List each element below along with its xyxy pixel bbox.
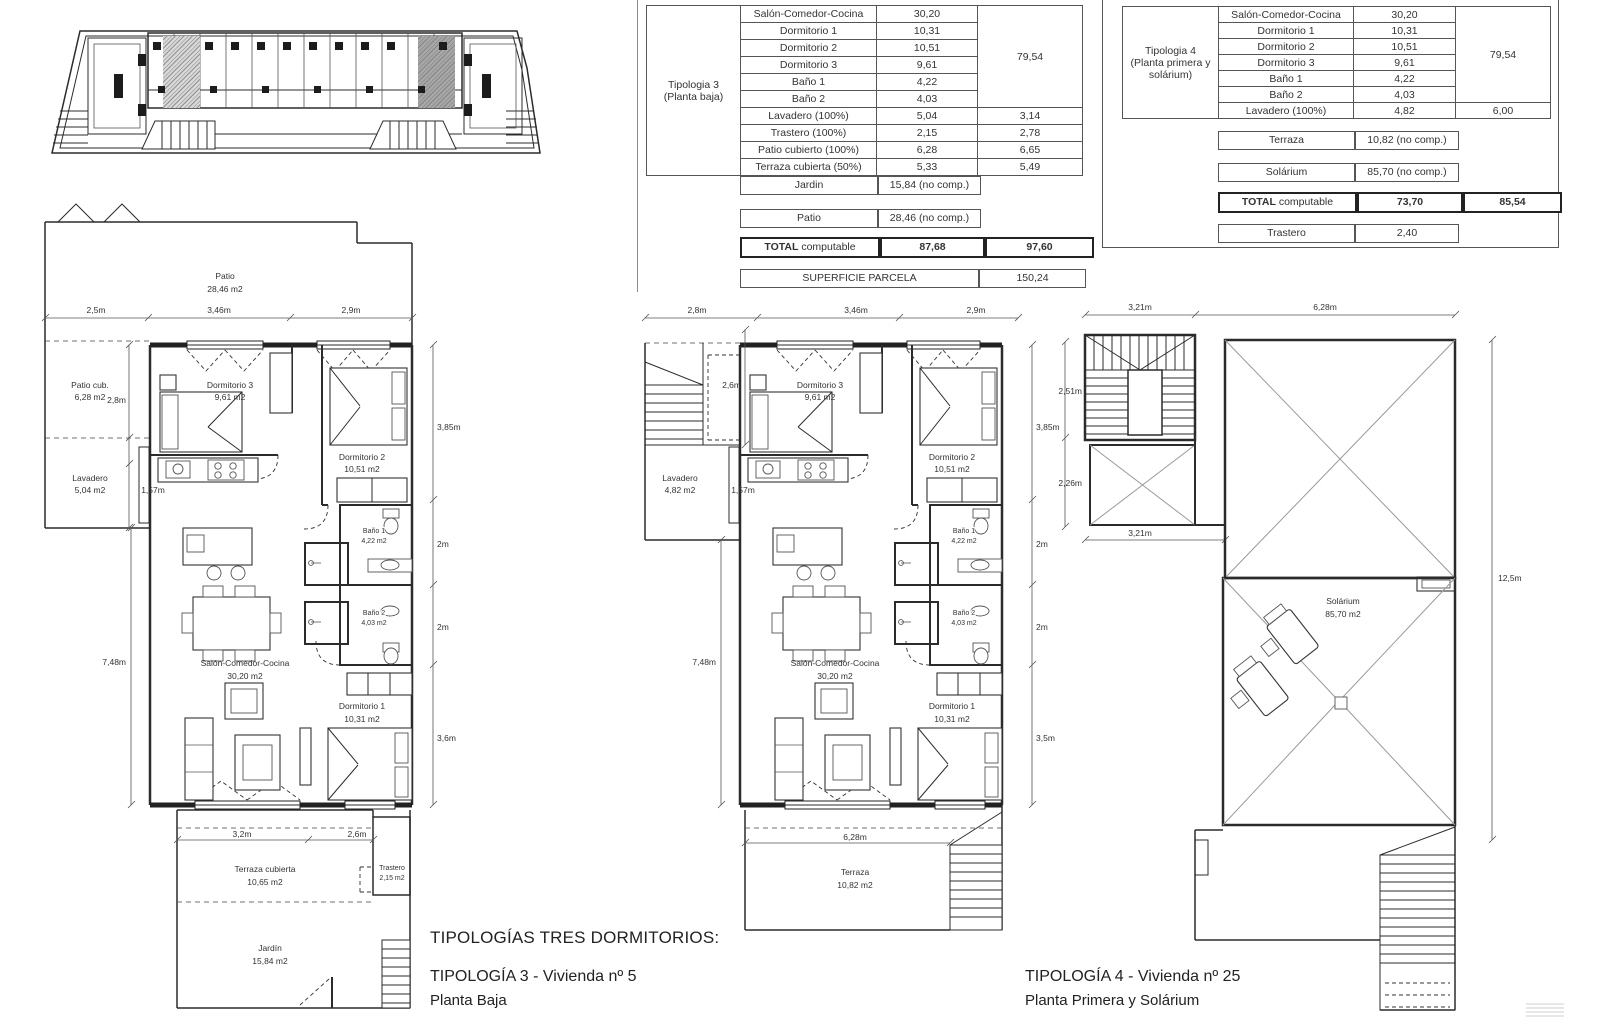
room-value2: 3,14	[978, 108, 1083, 125]
room-value: 10,51	[1354, 39, 1456, 55]
room-label: Dormitorio 2	[339, 452, 386, 462]
dimension-label: 3,46m	[207, 305, 231, 315]
kitchen	[158, 458, 258, 580]
room-area: 4,22 m2	[361, 538, 386, 545]
room-label: Baño 2	[363, 610, 385, 617]
room-label: Terraza	[841, 867, 870, 877]
room-label: Terraza cubierta (50%)	[741, 159, 877, 176]
site-stairs	[142, 121, 456, 149]
dimension-label: 3,6m	[437, 733, 456, 743]
parcela-value: 150,24	[979, 269, 1086, 288]
dimension-label: 3,46m	[844, 305, 868, 315]
parcela-row: SUPERFICIE PARCELA 150,24	[740, 269, 1086, 288]
area-table-tipologia-4: Tipologia 4 (Planta primera y solárium) …	[1122, 6, 1551, 119]
room-value: 4,22	[1354, 71, 1456, 87]
room-label: Jardín	[258, 943, 282, 953]
trastero-label: Trastero	[1218, 224, 1355, 243]
trastero-row: Trastero 2,40	[1218, 224, 1459, 243]
total-value1: 87,68	[880, 237, 985, 258]
room-area: 6,28 m2	[75, 392, 106, 402]
room-label: Terraza cubierta	[235, 864, 296, 874]
dimension-label: 12,5m	[1498, 573, 1522, 583]
dining-table	[772, 586, 871, 661]
dimension-label: 2,9m	[342, 305, 361, 315]
room-area: 10,51 m2	[934, 464, 970, 474]
staircase	[645, 343, 740, 445]
room-label: Dormitorio 3	[207, 380, 254, 390]
room-area: 9,61 m2	[805, 392, 836, 402]
dimension-label: 2,8m	[107, 395, 126, 405]
floor-plan-tipologia-4: 2,8m 3,46m 2,9m 2,6m Dormitorio 3 9,61 m…	[628, 300, 1068, 940]
room-value2: 6,00	[1456, 103, 1551, 119]
dimension-label: 2,9m	[967, 305, 986, 315]
room-value: 10,31	[877, 23, 978, 40]
dimension-label: 2,8m	[688, 305, 707, 315]
room-area: 10,31 m2	[344, 714, 380, 724]
solarium-plan-tipologia-4: 3,21m 6,28m 2,51m 2,26m 3,21m Solárium 8…	[1040, 295, 1570, 1020]
room-area: 4,82 m2	[665, 485, 696, 495]
room-label: Baño 2	[741, 91, 877, 108]
total-label: TOTAL computable	[1218, 192, 1357, 213]
architectural-sheet: Tipologia 3 (Planta baja) Salón-Comedor-…	[0, 0, 1600, 1024]
room-label: Lavadero (100%)	[1219, 103, 1354, 119]
dimension-label: 2,6m	[348, 829, 367, 839]
total-bold: TOTAL	[764, 241, 798, 253]
dimension-label: 2,6m	[722, 380, 741, 390]
total-rest: computable	[798, 241, 855, 253]
room-area: 30,20 m2	[227, 671, 263, 681]
area-table-tipologia-3: Tipologia 3 (Planta baja) Salón-Comedor-…	[646, 5, 1083, 176]
total-rest: computable	[1276, 196, 1333, 208]
table3-header-line1: Tipologia 3	[668, 79, 719, 91]
table3-header-line2: (Planta baja)	[664, 91, 724, 103]
room-area: 85,70 m2	[1325, 609, 1361, 619]
room-area: 4,03 m2	[361, 620, 386, 627]
dimension-label: 3,85m	[437, 422, 461, 432]
jardin-value: 15,84 (no comp.)	[878, 176, 981, 195]
room-area: 5,04 m2	[75, 485, 106, 495]
room-label: Patio cubierto (100%)	[741, 142, 877, 159]
bathroom-2	[895, 585, 1002, 665]
dimension-label: 2m	[437, 622, 449, 632]
total-value2: 85,54	[1463, 192, 1562, 213]
room-value: 30,20	[1354, 7, 1456, 23]
room-area: 28,46 m2	[207, 284, 243, 294]
room-area: 15,84 m2	[252, 956, 288, 966]
room-label: Patio	[215, 271, 235, 281]
dimension-label: 2,51m	[1058, 386, 1082, 396]
room-value: 5,33	[877, 159, 978, 176]
dimension-label: 3,21m	[1128, 528, 1152, 538]
room-value: 2,15	[877, 125, 978, 142]
garden-stairs	[382, 940, 410, 1008]
room-label: Baño 1	[741, 74, 877, 91]
room-label: Dormitorio 3	[1219, 55, 1354, 71]
room-value: 10,31	[1354, 23, 1456, 39]
end-house-right	[464, 38, 522, 134]
group-title: TIPOLOGÍAS TRES DORMITORIOS:	[430, 928, 719, 948]
room-label: Dormitorio 3	[797, 380, 844, 390]
patio-row: Patio 28,46 (no comp.)	[740, 209, 981, 228]
room-label: Dormitorio 2	[741, 40, 877, 57]
room-area: 4,03 m2	[951, 620, 976, 627]
room-value: 4,82	[1354, 103, 1456, 119]
room-value: 30,20	[877, 6, 978, 23]
room-label: Solárium	[1326, 596, 1360, 606]
room-area: 10,65 m2	[247, 877, 283, 887]
stairwell	[1085, 335, 1195, 440]
room-value: 4,03	[877, 91, 978, 108]
room-value: 4,22	[877, 74, 978, 91]
room-value2: 5,49	[978, 159, 1083, 176]
parcela-label: SUPERFICIE PARCELA	[740, 269, 979, 288]
room-area: 10,51 m2	[344, 464, 380, 474]
room-value: 6,28	[877, 142, 978, 159]
plan3-title: TIPOLOGÍA 3 - Vivienda nº 5	[430, 968, 637, 986]
table4-header-line1: Tipologia 4	[1145, 45, 1196, 57]
terrace-stairs	[1380, 827, 1455, 1010]
site-key-plan	[30, 16, 575, 166]
room-label: Dormitorio 2	[929, 452, 976, 462]
room-label: Salón-Comedor-Cocina	[201, 658, 290, 668]
dimension-label: 6,28m	[843, 832, 867, 842]
dimension-label: 1,57m	[731, 485, 755, 495]
total-row-t4: TOTAL computable 73,70 85,54	[1218, 192, 1562, 213]
dimension-label: 1,57m	[141, 485, 165, 495]
total-bold: TOTAL	[1242, 196, 1276, 208]
room-area: 30,20 m2	[817, 671, 853, 681]
patio-label: Patio	[740, 209, 878, 228]
end-house-left	[88, 38, 146, 134]
plan3-subtitle: Planta Baja	[430, 992, 507, 1009]
room-value: 10,51	[877, 40, 978, 57]
bathroom-1	[895, 505, 1002, 585]
table4-merged-subtotal: 79,54	[1456, 7, 1551, 103]
table3-header: Tipologia 3 (Planta baja)	[647, 6, 741, 176]
room-area: 4,22 m2	[951, 538, 976, 545]
room-label: Salón-Comedor-Cocina	[791, 658, 880, 668]
dimension-label: 3,21m	[1128, 302, 1152, 312]
room-area: 2,15 m2	[379, 875, 404, 882]
room-label: Dormitorio 2	[1219, 39, 1354, 55]
room-value: 9,61	[1354, 55, 1456, 71]
sheet-border-line	[637, 0, 638, 292]
room-label: Dormitorio 3	[741, 57, 877, 74]
jardin-row: Jardin 15,84 (no comp.)	[740, 176, 981, 195]
room-label: Baño 2	[1219, 87, 1354, 103]
room-label: Trastero (100%)	[741, 125, 877, 142]
plan4-title: TIPOLOGÍA 4 - Vivienda nº 25	[1025, 968, 1240, 986]
watermark	[1526, 1002, 1564, 1017]
dimension-label: 2m	[437, 539, 449, 549]
dimension-label: 6,28m	[1313, 302, 1337, 312]
solarium-row: Solárium 85,70 (no comp.)	[1218, 163, 1459, 182]
room-value2: 2,78	[978, 125, 1083, 142]
terraza-value: 10,82 (no comp.)	[1355, 131, 1459, 150]
table4-header-line2: (Planta primera y	[1131, 57, 1211, 69]
room-area: 10,31 m2	[934, 714, 970, 724]
dimension-label: 7,48m	[692, 657, 716, 667]
room-label: Dormitorio 1	[929, 701, 976, 711]
room-label: Salón-Comedor-Cocina	[741, 6, 877, 23]
plan4-subtitle: Planta Primera y Solárium	[1025, 992, 1199, 1009]
total-label: TOTAL computable	[740, 237, 880, 258]
jardin-label: Jardin	[740, 176, 878, 195]
table3-merged-subtotal: 79,54	[978, 6, 1083, 108]
living-room	[185, 683, 311, 800]
room-label: Baño 1	[953, 528, 975, 535]
terraza-label: Terraza	[1218, 131, 1355, 150]
bathroom-1	[305, 505, 412, 585]
room-value2: 6,65	[978, 142, 1083, 159]
kitchen	[748, 458, 848, 580]
total-value1: 73,70	[1357, 192, 1463, 213]
trastero-value: 2,40	[1355, 224, 1459, 243]
solarium-label: Solárium	[1218, 163, 1355, 182]
room-label: Trastero	[379, 865, 405, 872]
room-value: 4,03	[1354, 87, 1456, 103]
room-area: 10,82 m2	[837, 880, 873, 890]
room-label: Salón-Comedor-Cocina	[1219, 7, 1354, 23]
dining-table	[182, 586, 281, 661]
room-label: Baño 1	[363, 528, 385, 535]
terrace-stairs	[950, 812, 1002, 930]
terraza-row: Terraza 10,82 (no comp.)	[1218, 131, 1459, 150]
room-area: 9,61 m2	[215, 392, 246, 402]
room-label: Lavadero	[72, 473, 108, 483]
room-label: Patio cub.	[71, 380, 109, 390]
bed-dorm2	[330, 368, 407, 502]
room-label: Dormitorio 1	[741, 23, 877, 40]
dimension-label: 2,26m	[1058, 478, 1082, 488]
room-label: Dormitorio 1	[339, 701, 386, 711]
total-row-t3: TOTAL computable 87,68 97,60	[740, 237, 1094, 258]
living-room	[775, 683, 901, 800]
patio-value: 28,46 (no comp.)	[878, 209, 981, 228]
table4-header: Tipologia 4 (Planta primera y solárium)	[1123, 7, 1219, 119]
room-label: Dormitorio 1	[1219, 23, 1354, 39]
sun-lounger	[1218, 653, 1289, 726]
room-value: 9,61	[877, 57, 978, 74]
dimension-label: 7,48m	[102, 657, 126, 667]
total-value2: 97,60	[985, 237, 1094, 258]
dimension-label: 2,5m	[87, 305, 106, 315]
room-label: Lavadero (100%)	[741, 108, 877, 125]
bed-dorm1	[328, 673, 412, 800]
room-value: 5,04	[877, 108, 978, 125]
room-label: Baño 2	[953, 610, 975, 617]
table4-header-line3: solárium)	[1149, 69, 1192, 81]
room-label: Baño 1	[1219, 71, 1354, 87]
bed-dorm1	[918, 673, 1002, 800]
room-label: Lavadero	[662, 473, 698, 483]
bed-dorm2	[920, 368, 997, 502]
floor-plan-tipologia-3: Patio 28,46 m2 2,5m 3,46m 2,9m Patio cub…	[38, 195, 468, 1017]
solarium-value: 85,70 (no comp.)	[1355, 163, 1459, 182]
bathroom-2	[305, 585, 412, 665]
dimension-label: 3,2m	[233, 829, 252, 839]
